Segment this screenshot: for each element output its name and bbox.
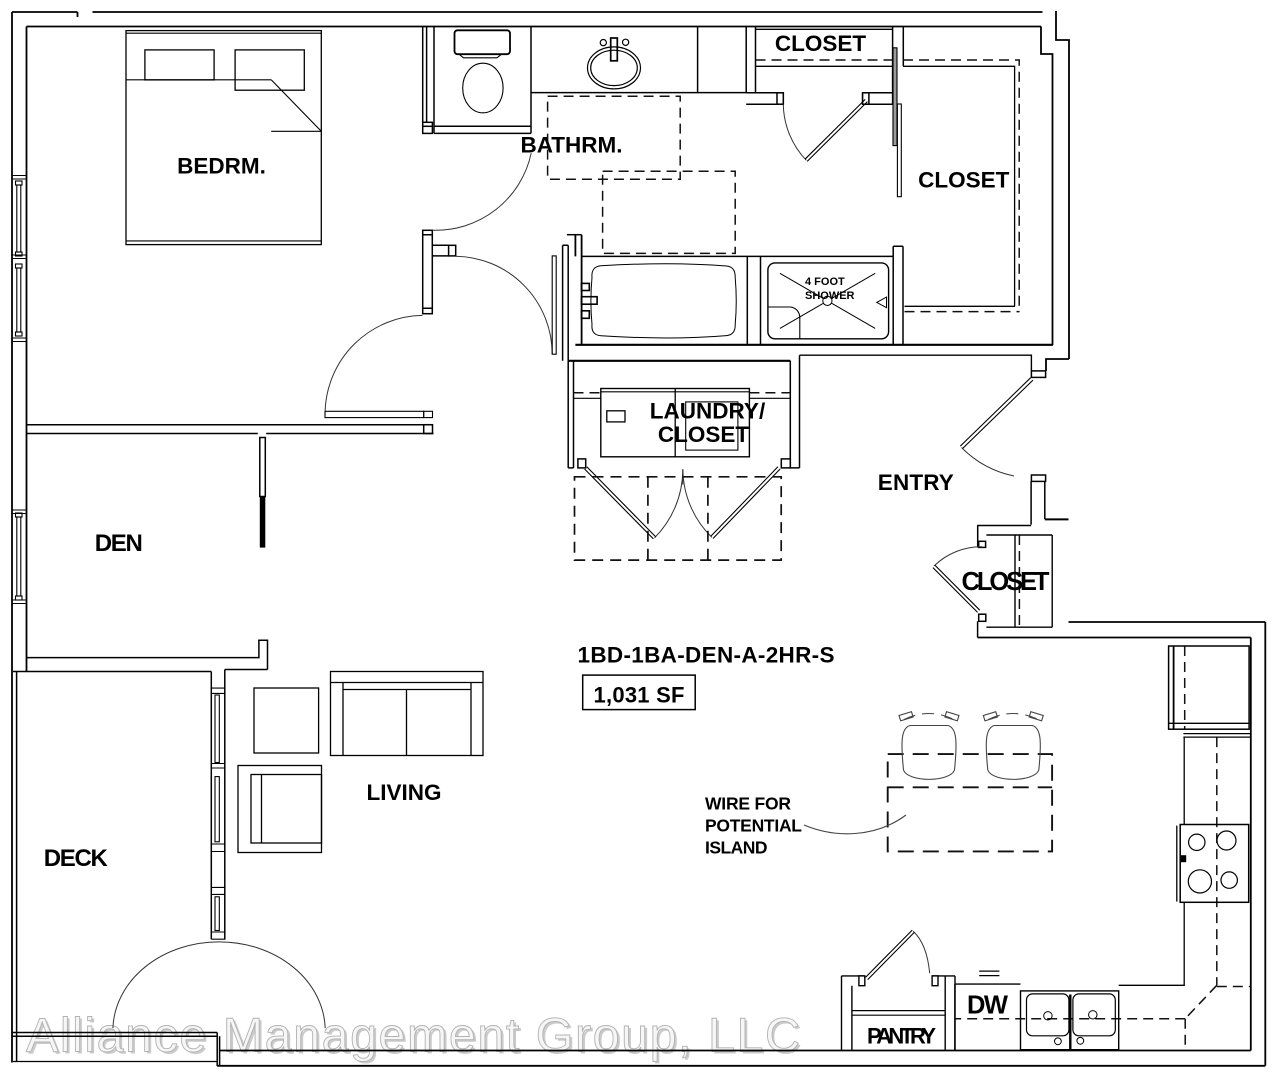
svg-text:POTENTIAL: POTENTIAL (705, 816, 802, 836)
svg-text:WIRE FOR: WIRE FOR (705, 794, 791, 814)
svg-text:1,031 SF: 1,031 SF (594, 683, 685, 708)
svg-text:DEN: DEN (95, 530, 143, 557)
svg-text:CLOSET: CLOSET (918, 168, 1010, 193)
svg-text:CLOSET: CLOSET (775, 31, 867, 56)
svg-text:LAUNDRY/: LAUNDRY/ (650, 399, 766, 424)
svg-text:ENTRY: ENTRY (878, 470, 954, 495)
svg-text:ISLAND: ISLAND (705, 838, 768, 858)
svg-text:PANTRY: PANTRY (867, 1024, 936, 1049)
svg-text:SHOWER: SHOWER (805, 290, 855, 302)
svg-text:CLOSET: CLOSET (962, 568, 1050, 596)
svg-text:1BD-1BA-DEN-A-2HR-S: 1BD-1BA-DEN-A-2HR-S (578, 643, 835, 668)
svg-text:DECK: DECK (44, 845, 109, 872)
svg-text:BATHRM.: BATHRM. (520, 133, 622, 158)
svg-text:LIVING: LIVING (366, 780, 441, 805)
svg-text:Alliance Management Group, LLC: Alliance Management Group, LLC (26, 1009, 800, 1063)
svg-text:BEDRM.: BEDRM. (177, 154, 266, 179)
svg-text:4 FOOT: 4 FOOT (805, 276, 845, 288)
svg-text:DW: DW (967, 992, 1009, 1020)
svg-text:CLOSET: CLOSET (658, 422, 750, 447)
